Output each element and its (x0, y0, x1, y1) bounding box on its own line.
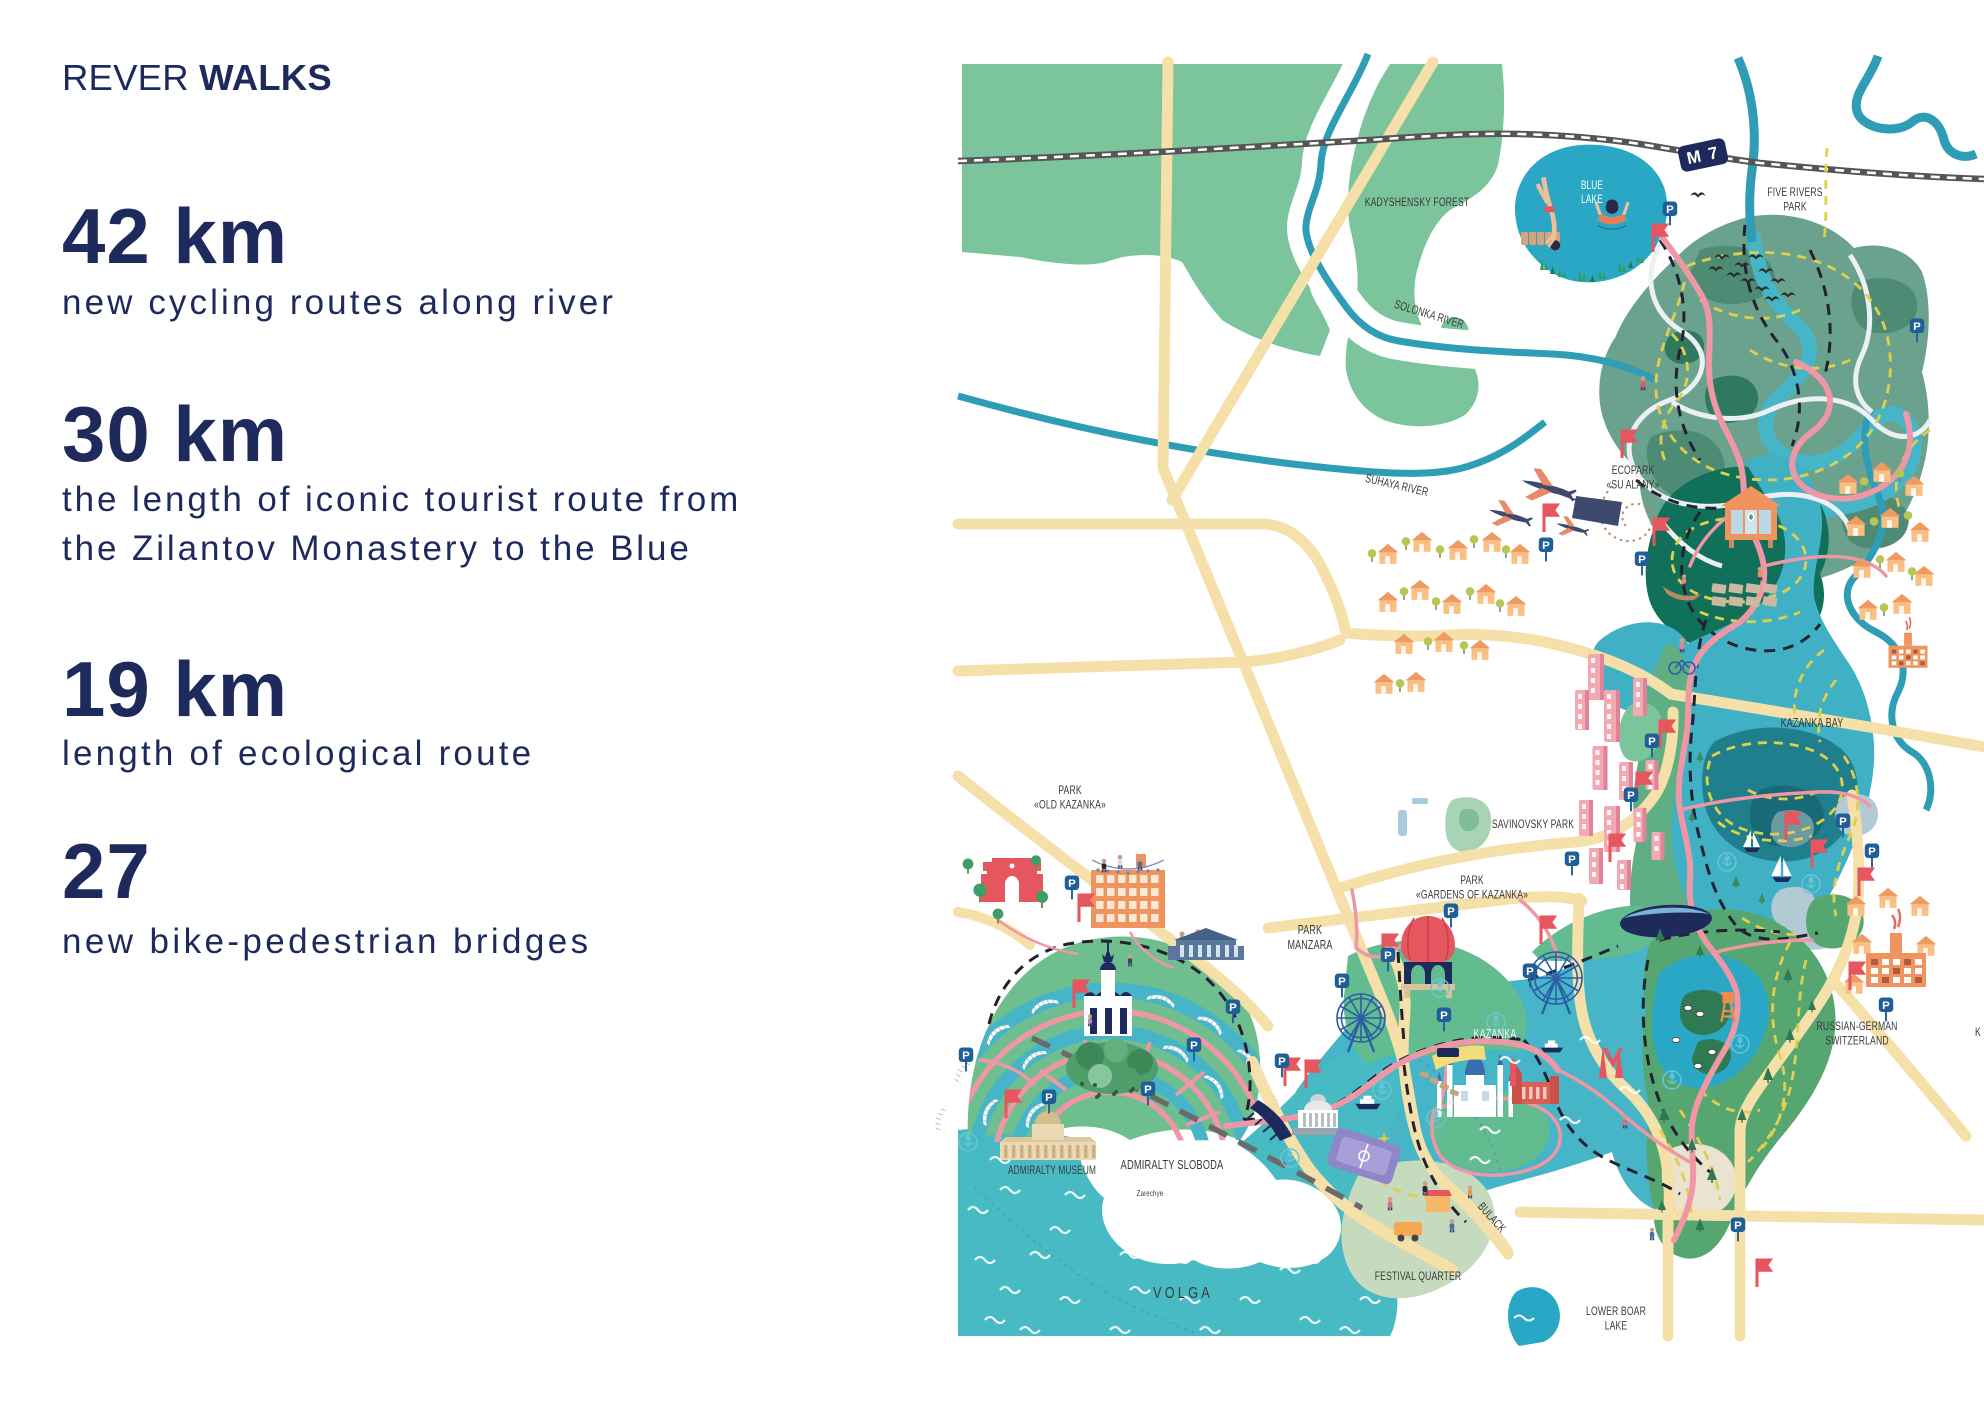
svg-text:P: P (1734, 1220, 1742, 1232)
svg-text:P: P (1638, 554, 1646, 566)
svg-text:ECOPARK: ECOPARK (1612, 465, 1655, 478)
svg-text:LAKE: LAKE (1605, 1320, 1628, 1333)
svg-text:P: P (1278, 1056, 1286, 1068)
svg-text:P: P (1882, 1000, 1890, 1012)
svg-text:FIVE RIVERS: FIVE RIVERS (1767, 187, 1822, 200)
svg-text:P: P (1068, 878, 1076, 890)
svg-text:PARK: PARK (1783, 201, 1806, 214)
svg-text:PARK: PARK (1460, 875, 1483, 888)
svg-text:Zarechye: Zarechye (1137, 1188, 1164, 1198)
svg-text:P: P (1144, 1084, 1152, 1096)
svg-text:MANZARA: MANZARA (1288, 939, 1333, 953)
svg-text:P: P (1338, 976, 1346, 988)
svg-text:«SU ALANY»: «SU ALANY» (1606, 479, 1659, 492)
svg-text:P: P (1542, 540, 1550, 552)
svg-text:ADMIRALTY SLOBODA: ADMIRALTY SLOBODA (1121, 1159, 1224, 1173)
svg-text:«GARDENS OF KAZANKA»: «GARDENS OF KAZANKA» (1416, 889, 1528, 902)
svg-text:FESTIVAL QUARTER: FESTIVAL QUARTER (1375, 1271, 1462, 1284)
svg-text:KADYSHENSKY FOREST: KADYSHENSKY FOREST (1365, 197, 1470, 210)
svg-text:KAZANKA BAY: KAZANKA BAY (1781, 717, 1844, 731)
svg-text:P: P (1839, 816, 1847, 828)
svg-text:LOWER BOAR: LOWER BOAR (1586, 1306, 1646, 1319)
svg-text:P: P (1568, 854, 1576, 866)
svg-text:SUHAYA RIVER: SUHAYA RIVER (1364, 473, 1430, 500)
svg-text:P: P (1666, 204, 1674, 216)
svg-text:P: P (1229, 1002, 1237, 1014)
svg-text:LAKE: LAKE (1581, 194, 1603, 207)
svg-text:RUSSIAN-GERMAN: RUSSIAN-GERMAN (1816, 1021, 1897, 1034)
svg-text:P: P (1648, 736, 1656, 748)
svg-text:VOLGA: VOLGA (1153, 1285, 1213, 1303)
svg-text:P: P (1045, 1092, 1053, 1104)
svg-text:P: P (1440, 1010, 1448, 1022)
svg-text:P: P (1190, 1040, 1198, 1052)
svg-text:P: P (1627, 790, 1635, 802)
svg-text:SAVINOVSKY PARK: SAVINOVSKY PARK (1492, 819, 1574, 832)
svg-text:P: P (1526, 966, 1534, 978)
svg-text:P: P (1384, 950, 1392, 962)
svg-text:SWITZERLAND: SWITZERLAND (1825, 1035, 1889, 1048)
svg-text:PARK: PARK (1058, 785, 1081, 798)
svg-text:K: K (1975, 1027, 1981, 1040)
svg-text:ADMIRALTY MUSEUM: ADMIRALTY MUSEUM (1008, 1165, 1096, 1178)
svg-text:BLUE: BLUE (1581, 180, 1603, 193)
svg-text:P: P (962, 1050, 970, 1062)
svg-text:KAZANKA: KAZANKA (1474, 1028, 1517, 1042)
svg-text:PARK: PARK (1298, 924, 1323, 938)
svg-text:P: P (1868, 846, 1876, 858)
svg-text:«OLD KAZANKA»: «OLD KAZANKA» (1034, 799, 1106, 812)
svg-text:P: P (1447, 906, 1455, 918)
svg-text:P: P (1913, 321, 1921, 333)
